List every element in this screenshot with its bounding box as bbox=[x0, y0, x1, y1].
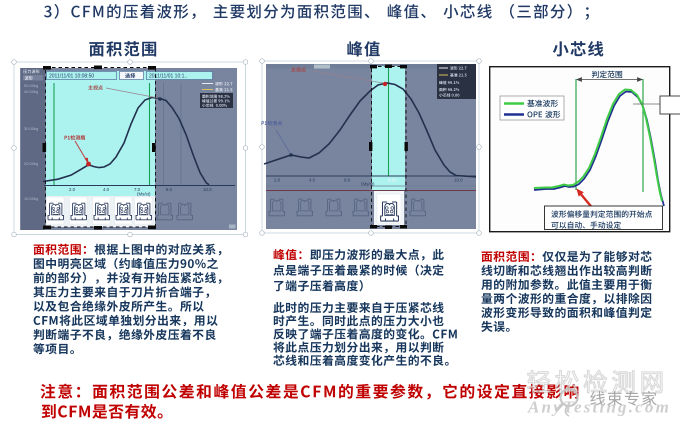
svg-text:2.0: 2.0 bbox=[274, 178, 281, 183]
svg-text:8.00: 8.00 bbox=[388, 178, 397, 183]
svg-text:(Ms/st): (Ms/st) bbox=[137, 192, 151, 197]
svg-text:AnyTesting.com: AnyTesting.com bbox=[527, 398, 671, 417]
svg-text:40.00kg: 40.00kg bbox=[24, 89, 38, 94]
svg-text:8.0: 8.0 bbox=[166, 187, 173, 192]
svg-text:2011/11/01 10:1..: 2011/11/01 10:1.. bbox=[149, 74, 187, 80]
svg-text:10.00kg: 10.00kg bbox=[24, 196, 38, 201]
svg-text:4.0: 4.0 bbox=[103, 187, 110, 192]
svg-text:50.00kg: 50.00kg bbox=[24, 83, 38, 88]
svg-text:10.0: 10.0 bbox=[454, 178, 463, 183]
svg-text:2011/11/01 10:08:50: 2011/11/01 10:08:50 bbox=[49, 74, 94, 80]
svg-text:10.0: 10.0 bbox=[203, 187, 212, 192]
svg-text:20.00kg: 20.00kg bbox=[24, 161, 38, 166]
svg-text:4.0: 4.0 bbox=[309, 178, 316, 183]
svg-text:2.0: 2.0 bbox=[69, 187, 76, 192]
svg-text:30.00kg: 30.00kg bbox=[24, 126, 38, 131]
svg-text:6.0: 6.0 bbox=[344, 178, 351, 183]
